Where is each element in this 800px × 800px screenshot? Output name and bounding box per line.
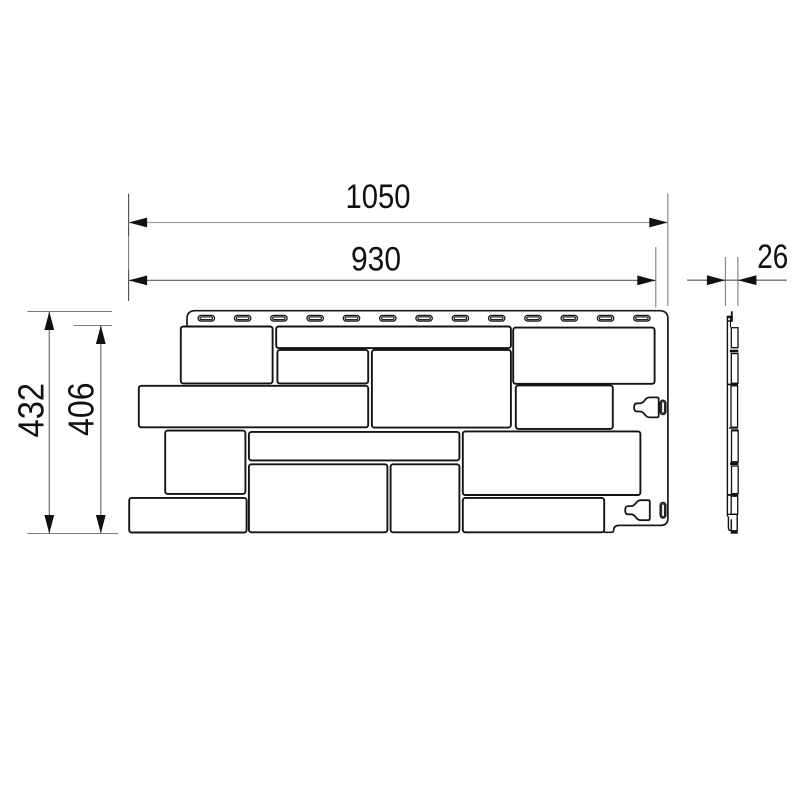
svg-text:432: 432 [10, 383, 51, 438]
svg-text:930: 930 [351, 240, 401, 278]
svg-text:406: 406 [61, 382, 102, 436]
svg-text:1050: 1050 [346, 178, 411, 216]
svg-text:26: 26 [757, 238, 788, 276]
